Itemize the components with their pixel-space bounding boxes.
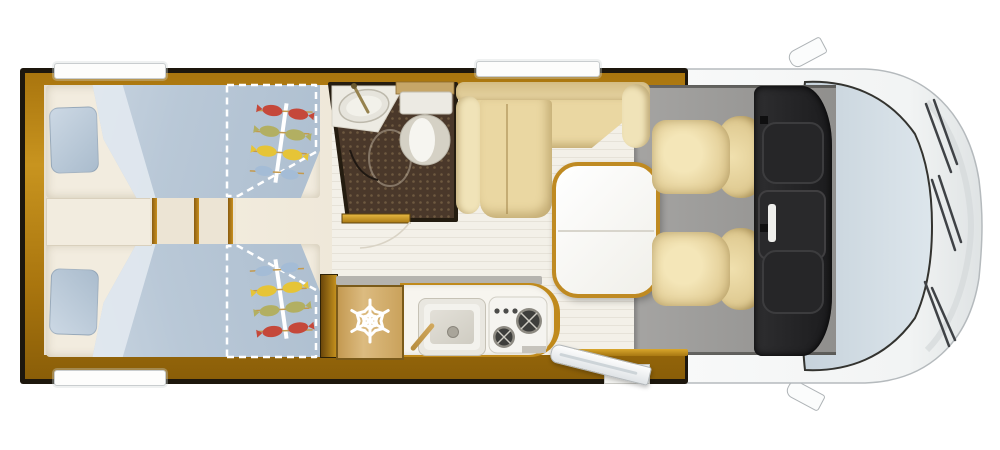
single-bed-top	[46, 85, 320, 198]
single-bed-bottom	[46, 244, 320, 357]
between-beds-step-slats	[150, 198, 236, 244]
instrument-cluster-top	[762, 122, 824, 184]
swivel-seat-driver	[652, 114, 766, 200]
table-split-line	[558, 230, 654, 232]
swivel-seat-passenger	[652, 226, 766, 312]
hob-tray	[522, 346, 546, 353]
bench-backrest-top	[456, 82, 650, 102]
sink-drain	[447, 326, 459, 338]
between-beds-console	[46, 198, 152, 246]
motorhome-floorplan	[0, 0, 1000, 450]
bathroom	[326, 80, 462, 252]
window-bedroom-bottom	[54, 370, 166, 386]
wood-slat	[152, 198, 157, 244]
hob-knob	[494, 308, 499, 313]
cushion-seam	[506, 104, 508, 214]
dash-button	[760, 224, 768, 232]
dinette-table	[552, 162, 660, 298]
hob-two-burner	[488, 296, 548, 354]
bench-armrest-right	[622, 84, 650, 148]
burner-small	[493, 326, 515, 348]
hob-knob	[503, 308, 508, 313]
pillow	[49, 106, 99, 174]
burner-large	[516, 308, 542, 334]
snowflake-icon	[344, 295, 396, 347]
dash-button	[760, 116, 768, 124]
pillow	[49, 268, 99, 336]
fish-print-art	[246, 95, 316, 190]
seat-cushion	[652, 120, 730, 194]
hob-knob	[512, 308, 517, 313]
door-swing-arc	[360, 222, 410, 248]
bench-armrest-left	[456, 96, 480, 214]
toilet-cistern	[400, 92, 452, 114]
fish-print-art	[246, 251, 316, 346]
basin-faucet-knob	[351, 83, 357, 89]
seat-cushion	[652, 232, 730, 306]
bench-seat-left	[480, 100, 552, 218]
window-bedroom-top	[54, 63, 166, 79]
bathroom-door	[342, 214, 410, 223]
gear-selector	[768, 204, 776, 242]
window-dinette-top	[476, 61, 600, 77]
instrument-cluster-bottom	[762, 250, 824, 314]
wood-slat	[194, 198, 199, 244]
wood-slat	[228, 198, 233, 244]
toilet-seat	[409, 118, 435, 162]
refrigerator	[336, 285, 404, 360]
